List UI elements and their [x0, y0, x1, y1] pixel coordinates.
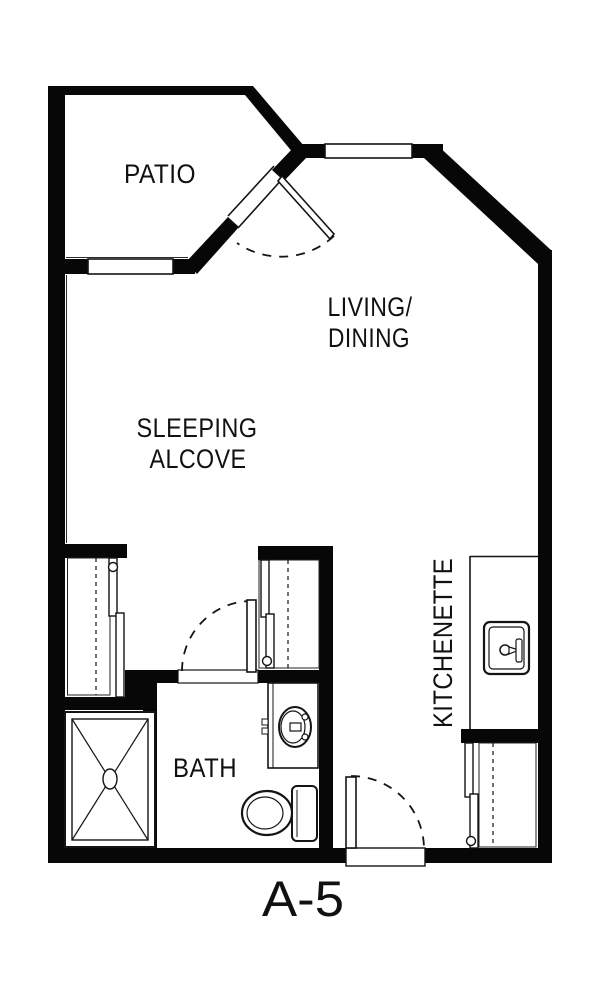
bath-door-threshold [178, 670, 258, 683]
closet-right-door-panel-1 [261, 560, 269, 617]
wall-shower-top [48, 697, 157, 710]
closet-br-door-pull [467, 837, 476, 846]
living-dining-label-line2: DINING [328, 323, 410, 353]
closet-right-door-pull [263, 657, 272, 666]
kitchenette-label: KITCHENETTE [428, 558, 458, 728]
entry-door [346, 776, 425, 866]
floor-plan-page: PATIO LIVING/ DINING SLEEPING ALCOVE BAT… [0, 0, 604, 998]
wall-closet-left-top [48, 544, 127, 558]
wall-patio-top [48, 86, 253, 95]
window-top [325, 144, 412, 158]
entry-door-threshold [346, 848, 425, 866]
shower-icon [65, 712, 155, 847]
bath-door-leaf [247, 600, 256, 672]
closet-bottom-right [465, 743, 536, 848]
wall-patio-diagonal-ne [245, 86, 304, 154]
sleeping-alcove-label-line2: ALCOVE [150, 444, 247, 474]
floor-plan-drawing: PATIO LIVING/ DINING SLEEPING ALCOVE BAT… [0, 0, 604, 998]
wall-patio-bottom-left [48, 259, 88, 274]
vanity-faucet-handle-1 [302, 714, 308, 720]
wall-patio-diagonal-se [186, 217, 239, 274]
bath-label: BATH [173, 753, 237, 783]
wall-bath-top-right [258, 670, 319, 683]
closet-left-door-panel-2 [116, 613, 124, 697]
wall-face-lines [66, 258, 188, 544]
bath-door-swing-arc [182, 601, 252, 671]
window-patio [88, 259, 173, 274]
closet-left-door-pull [109, 563, 118, 572]
entry-door-leaf [346, 777, 356, 848]
entry-door-swing-arc [351, 776, 424, 848]
vanity-faucet-handle-2 [302, 734, 308, 740]
toilet-icon [242, 786, 317, 841]
patio-door-swing-arc [237, 236, 334, 257]
closet-left [68, 558, 125, 697]
closet-right [259, 560, 319, 668]
living-dining-label-line1: LIVING/ [328, 292, 413, 322]
closet-left-interior [68, 558, 111, 695]
patio-door [228, 146, 334, 257]
bathroom-sink-icon [262, 683, 318, 768]
wall-bath-east [319, 546, 333, 852]
kitchen-sink-icon [484, 622, 529, 674]
vanity-bracket-1 [262, 719, 268, 725]
closet-br-door-panel-1 [465, 743, 473, 797]
wall-right [538, 250, 552, 863]
wall-bottom-right [425, 848, 552, 863]
shower-drain [103, 769, 117, 789]
kitchen-faucet-lever [516, 639, 522, 662]
sleeping-alcove-label-line1: SLEEPING [137, 413, 258, 443]
patio-label: PATIO [124, 159, 196, 189]
vanity-faucet-spout [290, 723, 301, 731]
patio-door-jamb-line-inner [238, 177, 284, 228]
wall-left [48, 86, 65, 863]
wall-diagonal-ne [424, 144, 552, 264]
patio-door-leaf [278, 176, 334, 239]
kitchenette [470, 556, 538, 729]
wall-closet-br-top [461, 729, 538, 743]
patio-door-jamb-line-outer [228, 166, 274, 216]
wall-bottom-left [48, 848, 346, 863]
closet-br-interior [479, 743, 536, 847]
toilet-tank [292, 786, 317, 841]
unit-label: A-5 [262, 871, 344, 927]
vanity-bracket-2 [262, 728, 268, 734]
bath-door [178, 600, 258, 683]
